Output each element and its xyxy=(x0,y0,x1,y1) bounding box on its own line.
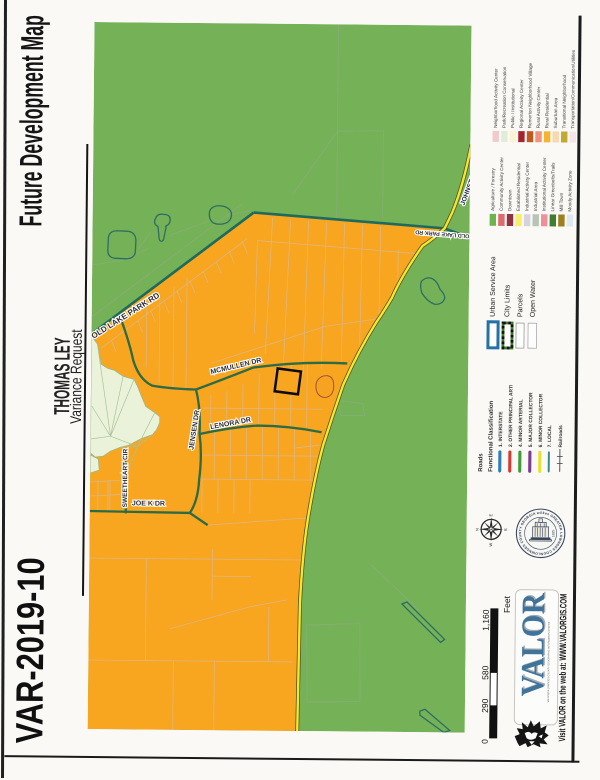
svg-text:City Limits: City Limits xyxy=(504,284,511,317)
svg-text:Industrial Activity Center: Industrial Activity Center xyxy=(524,161,529,211)
svg-text:2. OTHER PRINCIPAL ARTERIAL: 2. OTHER PRINCIPAL ARTERIAL xyxy=(508,385,515,447)
svg-text:Transportation/Communication/U: Transportation/Communication/Utilities xyxy=(570,49,576,128)
svg-text:1825: 1825 xyxy=(551,530,555,538)
svg-text:Rural Residential: Rural Residential xyxy=(544,93,549,128)
svg-text:Established Residential: Established Residential xyxy=(516,163,521,211)
svg-text:Industrial Area: Industrial Area xyxy=(533,181,538,211)
svg-text:Downtown: Downtown xyxy=(507,189,512,211)
svg-text:Functional Classification: Functional Classification xyxy=(488,400,495,471)
svg-text:Moody Activity Zone: Moody Activity Zone xyxy=(567,170,572,212)
svg-text:Parcels: Parcels xyxy=(517,293,524,317)
svg-text:JOE K DR: JOE K DR xyxy=(131,500,164,507)
svg-text:Linear Greenbelts/Trails: Linear Greenbelts/Trails xyxy=(550,162,555,212)
svg-text:SWEETHEART CIR: SWEETHEART CIR xyxy=(121,448,129,507)
svg-text:Regional Activity Center: Regional Activity Center xyxy=(519,79,524,128)
svg-text:N: N xyxy=(475,528,479,531)
svg-text:Railroads: Railroads xyxy=(558,425,564,448)
svg-text:Feet: Feet xyxy=(502,595,512,613)
svg-text:Transitional Neighborhood: Transitional Neighborhood xyxy=(562,74,568,128)
svg-text:Mill Town: Mill Town xyxy=(559,192,564,211)
svg-text:Urban Service Area: Urban Service Area xyxy=(490,257,498,317)
svg-text:Park/Recreation Conservation: Park/Recreation Conservation xyxy=(502,66,508,128)
svg-text:Community Activity Center: Community Activity Center xyxy=(499,157,505,211)
svg-text:E: E xyxy=(488,513,493,516)
svg-text:Rural Activity Center: Rural Activity Center xyxy=(536,86,541,128)
svg-text:Remerton Neighborhood Village: Remerton Neighborhood Village xyxy=(527,62,533,128)
svg-text:S: S xyxy=(503,528,508,531)
svg-text:Suburban Area: Suburban Area xyxy=(553,97,558,128)
svg-text:Open Water: Open Water xyxy=(530,279,537,317)
svg-text:Public / Institutional: Public / Institutional xyxy=(510,88,515,128)
svg-text:5. MAJOR COLLECTOR: 5. MAJOR COLLECTOR xyxy=(528,392,535,447)
svg-text:Institutional Activity Center: Institutional Activity Center xyxy=(542,157,548,211)
svg-text:W: W xyxy=(488,543,493,547)
svg-text:0: 0 xyxy=(480,739,490,744)
svg-text:1. INTERSTATE: 1. INTERSTATE xyxy=(498,411,504,447)
svg-text:Agriculture / Forestry: Agriculture / Forestry xyxy=(490,167,495,210)
svg-text:580: 580 xyxy=(480,665,490,680)
svg-text:1,160: 1,160 xyxy=(481,609,491,631)
svg-text:4. MINOR ARTERIAL: 4. MINOR ARTERIAL xyxy=(518,399,524,447)
svg-text:7. LOCAL: 7. LOCAL xyxy=(547,425,553,447)
svg-text:290: 290 xyxy=(480,698,490,713)
svg-text:Neighborhood Activity Center: Neighborhood Activity Center xyxy=(493,68,499,128)
svg-text:6. MINOR COLLECTOR: 6. MINOR COLLECTOR xyxy=(538,393,545,447)
svg-text:Roads: Roads xyxy=(478,453,484,472)
